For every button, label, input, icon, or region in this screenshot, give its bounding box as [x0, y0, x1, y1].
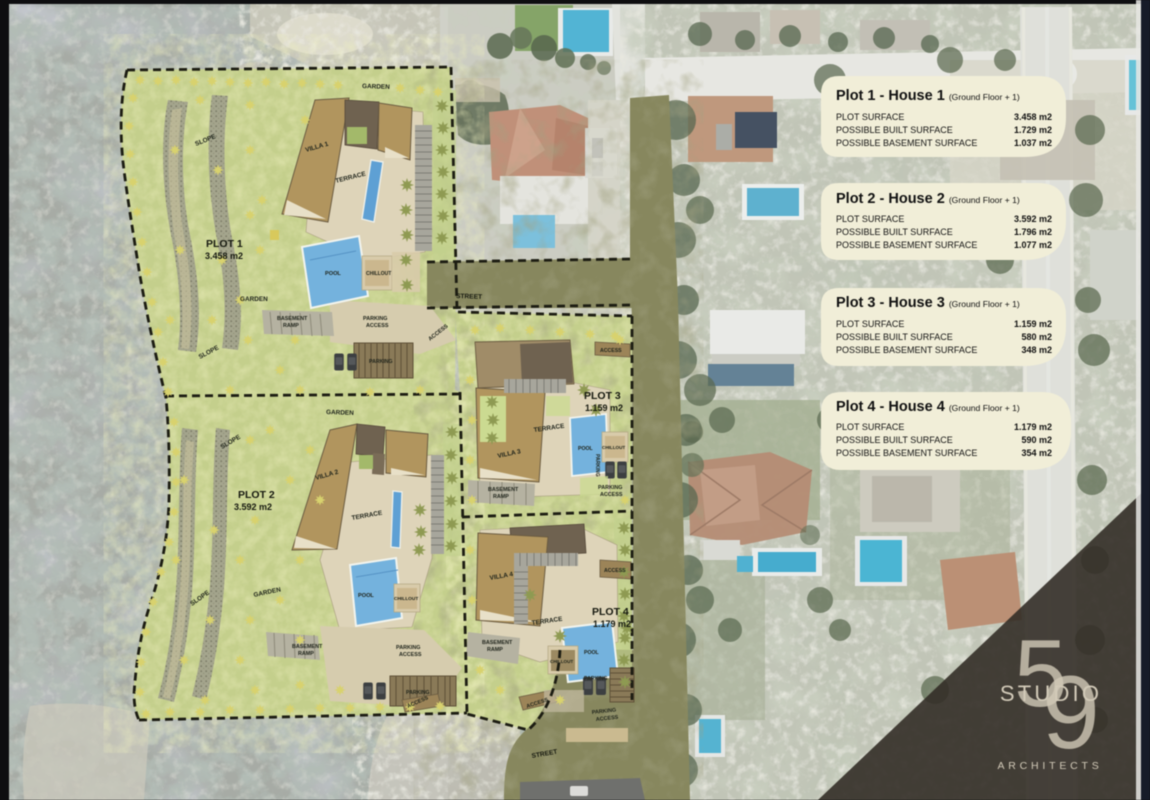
svg-text:PLOT 4: PLOT 4 [592, 606, 629, 618]
svg-text:PARKING: PARKING [594, 454, 600, 477]
svg-text:CHILLOUT: CHILLOUT [550, 659, 573, 664]
svg-text:POSSIBLE BASEMENT SURFACE: POSSIBLE BASEMENT SURFACE [836, 138, 977, 148]
svg-text:590 m2: 590 m2 [1021, 435, 1052, 445]
svg-text:PLOT 1: PLOT 1 [206, 238, 243, 250]
svg-text:GARDEN: GARDEN [362, 83, 390, 91]
svg-text:CHILLOUT: CHILLOUT [394, 596, 418, 602]
svg-text:RAMP: RAMP [283, 323, 299, 329]
svg-text:ACCESS: ACCESS [366, 323, 389, 329]
svg-text:3.592 m2: 3.592 m2 [1014, 214, 1052, 224]
svg-text:RAMP: RAMP [298, 651, 314, 657]
svg-text:POOL: POOL [325, 271, 341, 277]
svg-text:ACCESS: ACCESS [604, 568, 626, 574]
svg-text:POSSIBLE BASEMENT SURFACE: POSSIBLE BASEMENT SURFACE [836, 448, 977, 458]
svg-text:BASEMENT: BASEMENT [488, 487, 519, 493]
svg-text:PARKING: PARKING [363, 316, 387, 322]
svg-text:POSSIBLE BUILT SURFACE: POSSIBLE BUILT SURFACE [836, 435, 953, 445]
svg-text:BASEMENT: BASEMENT [482, 640, 513, 646]
svg-text:POSSIBLE BASEMENT SURFACE: POSSIBLE BASEMENT SURFACE [836, 345, 977, 355]
svg-text:RAMP: RAMP [487, 647, 503, 653]
svg-text:POSSIBLE BASEMENT SURFACE: POSSIBLE BASEMENT SURFACE [836, 240, 977, 250]
svg-text:9: 9 [1042, 655, 1100, 771]
svg-text:PLOT SURFACE: PLOT SURFACE [836, 422, 904, 432]
svg-text:1.159 m2: 1.159 m2 [585, 403, 623, 413]
svg-text:BASEMENT: BASEMENT [292, 644, 323, 650]
svg-text:PARKING: PARKING [584, 676, 608, 682]
svg-text:3.458 m2: 3.458 m2 [1014, 112, 1052, 122]
svg-text:CHILLOUT: CHILLOUT [602, 445, 625, 450]
svg-text:PARKING: PARKING [598, 485, 622, 491]
svg-text:GARDEN: GARDEN [326, 409, 354, 417]
svg-text:POSSIBLE BUILT SURFACE: POSSIBLE BUILT SURFACE [836, 125, 953, 135]
svg-text:BASEMENT: BASEMENT [277, 316, 308, 322]
svg-text:ACCESS: ACCESS [600, 348, 622, 354]
svg-text:1.159 m2: 1.159 m2 [1014, 319, 1052, 329]
svg-text:PARKING: PARKING [396, 645, 420, 651]
svg-text:3.458 m2: 3.458 m2 [205, 251, 243, 261]
svg-text:ARCHITECTS: ARCHITECTS [997, 760, 1102, 772]
svg-text:1.037 m2: 1.037 m2 [1014, 138, 1052, 148]
svg-text:STREET: STREET [456, 293, 482, 301]
svg-text:PLOT SURFACE: PLOT SURFACE [836, 319, 904, 329]
svg-text:1.796 m2: 1.796 m2 [1014, 227, 1052, 237]
svg-text:POSSIBLE BUILT SURFACE: POSSIBLE BUILT SURFACE [836, 332, 953, 342]
svg-text:1.729 m2: 1.729 m2 [1014, 125, 1052, 135]
svg-text:PLOT SURFACE: PLOT SURFACE [836, 112, 904, 122]
svg-text:3.592 m2: 3.592 m2 [234, 502, 272, 512]
svg-text:PARKING: PARKING [369, 359, 393, 365]
svg-text:1.077 m2: 1.077 m2 [1014, 240, 1052, 250]
svg-text:POOL: POOL [578, 446, 594, 452]
svg-text:POOL: POOL [358, 593, 374, 599]
svg-text:ACCESS: ACCESS [600, 492, 623, 498]
svg-text:PLOT 2: PLOT 2 [238, 489, 275, 501]
svg-text:1.179 m2: 1.179 m2 [1014, 422, 1052, 432]
svg-text:POOL: POOL [584, 650, 600, 656]
svg-text:GARDEN: GARDEN [240, 296, 268, 303]
svg-text:1.179 m2: 1.179 m2 [593, 619, 631, 629]
svg-text:PLOT SURFACE: PLOT SURFACE [836, 214, 904, 224]
svg-text:RAMP: RAMP [493, 494, 509, 500]
svg-text:CHILLOUT: CHILLOUT [366, 271, 391, 277]
svg-text:PLOT 3: PLOT 3 [584, 390, 621, 402]
svg-text:POSSIBLE BUILT SURFACE: POSSIBLE BUILT SURFACE [836, 227, 953, 237]
svg-text:354 m2: 354 m2 [1021, 448, 1052, 458]
svg-text:STUDIO: STUDIO [1000, 681, 1102, 706]
svg-text:ACCESS: ACCESS [399, 652, 422, 658]
svg-text:348 m2: 348 m2 [1021, 345, 1052, 355]
svg-text:580 m2: 580 m2 [1021, 332, 1052, 342]
